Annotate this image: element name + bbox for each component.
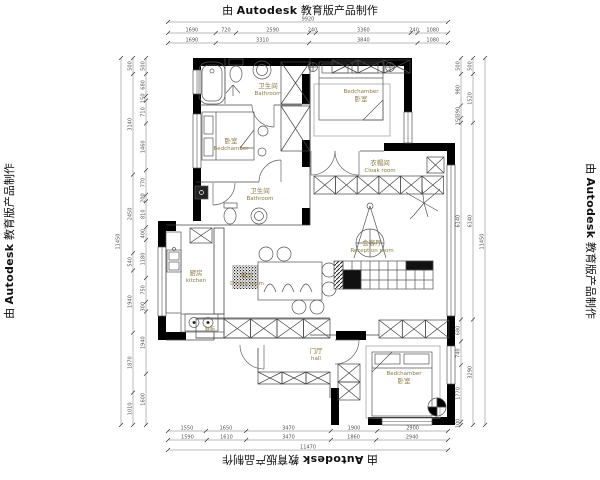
label-shoe-cabinet: 鞋柜: [205, 326, 215, 333]
dimension-chains: 9920169072025902403360240108016903310384…: [116, 17, 488, 453]
svg-text:240: 240: [409, 28, 419, 34]
svg-text:1460: 1460: [141, 140, 147, 153]
svg-text:1590: 1590: [181, 435, 194, 441]
svg-text:3360: 3360: [357, 28, 370, 34]
dimension-chain-top_total: 9920: [166, 17, 450, 25]
svg-text:300: 300: [141, 302, 147, 312]
svg-text:2590: 2590: [266, 28, 279, 34]
dimension-chain-right_inner: 50098039015061406807401770100: [456, 56, 464, 428]
svg-text:11450: 11450: [116, 234, 122, 250]
label-bedroom-bottom-zh: 卧室: [398, 376, 412, 385]
label-hall-zh: 门厅: [310, 346, 324, 355]
bed-left: [202, 112, 268, 160]
svg-text:1080: 1080: [426, 28, 439, 34]
svg-text:1550: 1550: [181, 426, 194, 432]
svg-text:3470: 3470: [282, 435, 295, 441]
svg-text:3290: 3290: [468, 366, 474, 379]
svg-text:1600: 1600: [141, 393, 147, 406]
svg-text:500: 500: [128, 61, 134, 71]
svg-text:3310: 3310: [256, 38, 269, 44]
label-bathroom-mid-zh: 卫生间: [250, 186, 270, 195]
svg-text:6140: 6140: [456, 215, 462, 228]
svg-text:6140: 6140: [468, 215, 474, 228]
dimension-chain-bottom_row1: 15501650347019002900: [166, 426, 450, 434]
svg-text:740: 740: [456, 348, 462, 358]
door-reception-double: [311, 151, 359, 175]
label-bedroom-right-zh: 卧室: [355, 94, 369, 103]
door-bathroom-top: [252, 105, 274, 127]
svg-text:1860: 1860: [347, 435, 360, 441]
kitchen-sink-icon: [167, 248, 181, 273]
svg-text:1610: 1610: [220, 435, 233, 441]
svg-text:1690: 1690: [185, 28, 198, 34]
door-bedroom-left: [259, 160, 281, 182]
washbasin-icon: [251, 208, 267, 224]
svg-text:540: 540: [128, 257, 134, 267]
svg-text:500: 500: [456, 61, 462, 71]
svg-text:3840: 3840: [357, 38, 370, 44]
plant-icon: [406, 187, 440, 219]
svg-text:1080: 1080: [426, 38, 439, 44]
svg-text:1870: 1870: [128, 356, 134, 369]
dimension-chain-right_outer: 500152061403290: [468, 56, 476, 427]
dimension-chain-bottom_total: 11470: [166, 445, 450, 453]
svg-text:500: 500: [468, 61, 474, 71]
svg-text:2940: 2940: [406, 435, 419, 441]
svg-text:1650: 1650: [220, 426, 233, 432]
toilet-icon: [224, 203, 237, 224]
stool-icon: [258, 126, 268, 136]
svg-text:720: 720: [221, 28, 231, 34]
svg-text:500: 500: [141, 61, 147, 71]
svg-text:1770: 1770: [456, 387, 462, 400]
stool-icon: [258, 148, 266, 156]
svg-text:400: 400: [141, 229, 147, 239]
svg-text:3140: 3140: [128, 118, 134, 131]
door-entry: [240, 345, 264, 369]
svg-text:2450: 2450: [128, 208, 134, 221]
chair-icon: [259, 247, 273, 261]
label-dining-en: Dining room: [230, 281, 264, 287]
svg-text:11470: 11470: [300, 445, 316, 451]
svg-text:770: 770: [141, 178, 147, 188]
chair-icon: [292, 300, 306, 314]
shower-icon: [226, 85, 240, 96]
svg-text:1180: 1180: [141, 253, 147, 266]
svg-text:3470: 3470: [282, 426, 295, 432]
svg-text:710: 710: [141, 107, 147, 117]
label-bedroom-left-en: Bedchamber: [213, 146, 249, 152]
label-bathroom-mid-en: Bathroom: [246, 196, 273, 202]
label-kitchen-zh: 厨房: [190, 268, 203, 277]
label-bedroom-left-zh: 卧室: [225, 136, 239, 145]
svg-text:810: 810: [141, 209, 147, 219]
svg-text:1940: 1940: [128, 295, 134, 308]
washing-machine-icon: [195, 186, 208, 199]
bathtub-icon: [199, 62, 225, 104]
dimension-chain-right_total: 11450: [480, 56, 488, 427]
floorplan-page: 由 Autodesk 教育版产品制作 由 Autodesk 教育版产品制作 由 …: [0, 0, 600, 480]
dimension-chain-top_row1: 1690720259024033602401080: [166, 28, 450, 36]
svg-text:11450: 11450: [480, 234, 486, 250]
chair-icon: [277, 247, 291, 261]
label-cloak-zh: 衣帽间: [370, 158, 390, 167]
door-bathroom-mid: [213, 183, 235, 205]
svg-text:680: 680: [141, 80, 147, 90]
svg-text:1690: 1690: [185, 38, 198, 44]
room-labels: 卫生间 Bathroom Bedchamber 卧室 卧室 Bedchamber…: [186, 81, 422, 385]
dimension-chain-left_inner: 5006801507101460770200810400118075030019…: [141, 56, 149, 427]
dimension-chain-top_row2: 1690331038401080: [166, 38, 450, 46]
svg-text:240: 240: [308, 28, 318, 34]
chair-icon: [310, 300, 324, 314]
svg-text:150: 150: [456, 116, 462, 126]
label-reception-en: Reception room: [350, 248, 393, 254]
svg-text:680: 680: [456, 326, 462, 336]
sofa: [334, 261, 433, 289]
floorplan-drawing: 卫生间 Bathroom Bedchamber 卧室 卧室 Bedchamber…: [0, 0, 600, 480]
label-hall-en: hall: [311, 356, 321, 362]
svg-text:9920: 9920: [302, 17, 315, 23]
compass-icon: [428, 398, 446, 416]
dimension-chain-left_total: 11450: [116, 56, 124, 427]
svg-text:980: 980: [456, 85, 462, 95]
svg-text:100: 100: [456, 419, 462, 429]
label-dining-zh: 餐厅: [241, 271, 255, 280]
svg-text:200: 200: [141, 193, 147, 203]
svg-text:150: 150: [141, 93, 147, 103]
svg-text:750: 750: [141, 285, 147, 295]
label-cloak-en: Cloak room: [364, 168, 395, 174]
svg-text:2900: 2900: [406, 426, 419, 432]
svg-text:1940: 1940: [141, 336, 147, 349]
svg-text:1900: 1900: [348, 426, 361, 432]
label-bathroom-top-zh: 卫生间: [258, 81, 278, 90]
dining-table: [258, 262, 322, 300]
dimension-chain-bottom_row2: 15901610347018602940: [166, 435, 450, 443]
svg-text:1520: 1520: [468, 92, 474, 105]
svg-text:1010: 1010: [128, 402, 134, 415]
label-reception-zh: 会客厅: [362, 238, 382, 247]
door-bedroom-bottom: [335, 340, 359, 364]
dimension-chain-left_outer: 50031402450540194018701010: [128, 56, 136, 427]
label-bathroom-top-en: Bathroom: [254, 91, 281, 97]
svg-text:390: 390: [456, 107, 462, 117]
label-kitchen-en: kitchen: [186, 278, 207, 284]
